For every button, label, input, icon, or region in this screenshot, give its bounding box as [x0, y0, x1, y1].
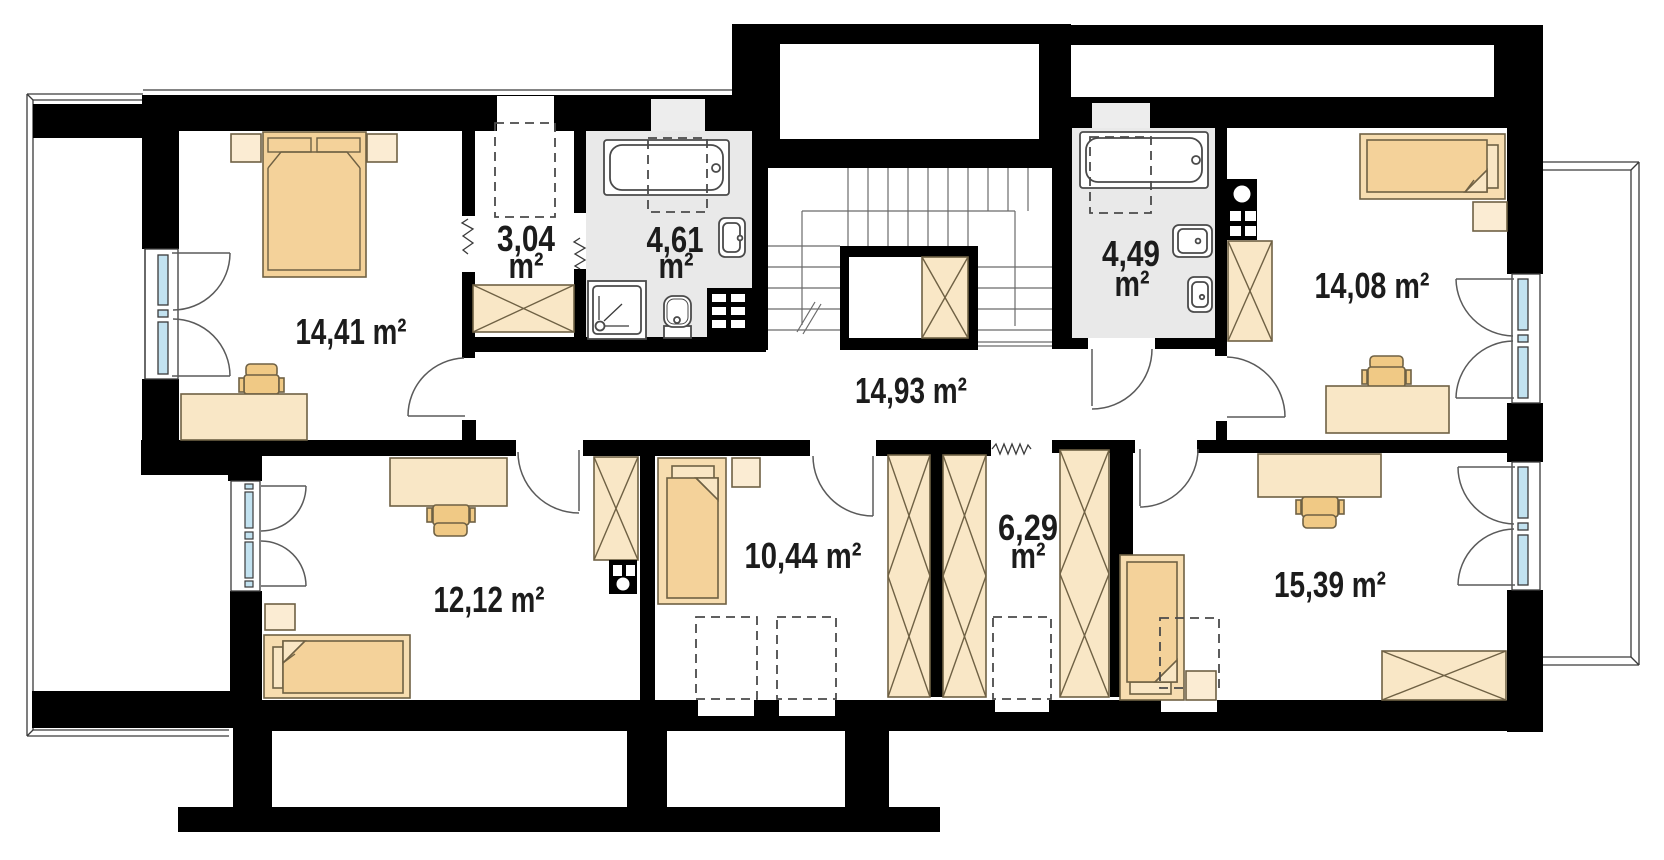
svg-text:m²: m² [509, 245, 544, 286]
svg-text:15,39 m²: 15,39 m² [1274, 564, 1386, 605]
svg-text:10,44 m²: 10,44 m² [745, 535, 862, 576]
svg-text:m²: m² [1011, 535, 1046, 576]
svg-text:14,41 m²: 14,41 m² [296, 311, 407, 352]
svg-text:12,12 m²: 12,12 m² [434, 579, 545, 620]
svg-text:m²: m² [1115, 263, 1150, 304]
svg-text:m²: m² [659, 245, 694, 286]
svg-text:14,08 m²: 14,08 m² [1315, 265, 1430, 306]
svg-text:14,93 m²: 14,93 m² [855, 370, 967, 411]
